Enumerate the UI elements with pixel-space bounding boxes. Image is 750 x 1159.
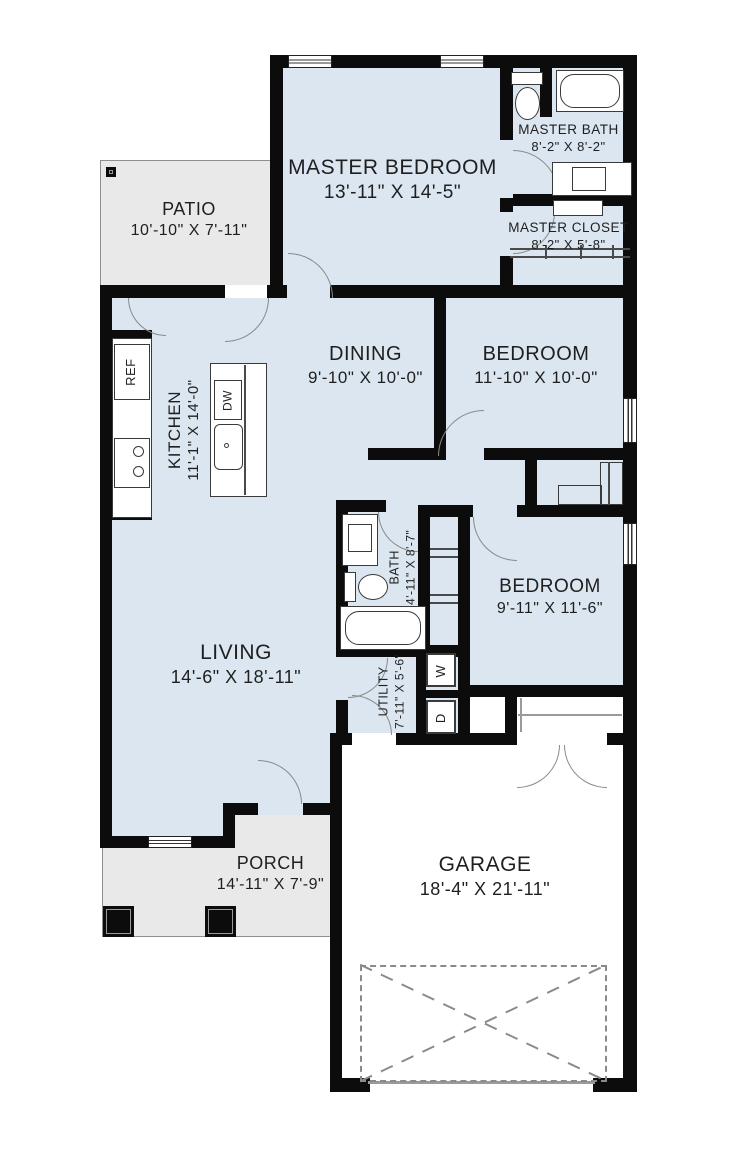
wall-hall-b bbox=[458, 505, 470, 655]
range-outline bbox=[114, 438, 150, 488]
master-toilet-tank bbox=[511, 72, 543, 85]
stoop-line-v bbox=[520, 698, 522, 732]
porch-post-left bbox=[103, 906, 134, 937]
dishwasher-label: DW bbox=[221, 385, 236, 417]
linen-shelf-1 bbox=[430, 548, 458, 550]
bedroom-right-name: BEDROOM bbox=[470, 575, 630, 599]
wall-bedroom2-bottom bbox=[458, 685, 637, 697]
bedroom-right-dims: 9'-11" X 11'-6" bbox=[470, 599, 630, 619]
master-closet-label: MASTER CLOSET 8'-2" X 5'-8" bbox=[506, 220, 631, 253]
master-bedroom-label: MASTER BEDROOM 13'-11" X 14'-5" bbox=[280, 155, 505, 205]
bath-toilet-bowl bbox=[358, 574, 388, 600]
kitchen-name: KITCHEN bbox=[164, 355, 185, 505]
dryer-label: D bbox=[433, 709, 449, 727]
kitchen-faucet bbox=[224, 443, 229, 448]
washer-text: W bbox=[433, 665, 448, 678]
wall-bedroom1-bottom bbox=[484, 448, 623, 460]
porch-post-right bbox=[205, 906, 236, 937]
bath-vanity-sink bbox=[348, 524, 372, 552]
garage-label: GARAGE 18'-4" X 21'-11" bbox=[390, 852, 580, 901]
master-closet-name: MASTER CLOSET bbox=[506, 220, 631, 237]
living-window bbox=[148, 836, 192, 848]
living-dims: 14'-6" X 18'-11" bbox=[140, 666, 332, 689]
closet-shelf-box bbox=[558, 485, 602, 505]
utility-label: UTILITY 7'-11" X 5'-6" bbox=[377, 637, 408, 745]
bath-name: BATH bbox=[388, 511, 404, 623]
dryer-text: D bbox=[433, 713, 448, 723]
patio-dims: 10'-10" X 7'-11" bbox=[108, 221, 270, 241]
master-bath-dims: 8'-2" X 8'-2" bbox=[506, 139, 631, 155]
bedroom-mid-window bbox=[623, 398, 637, 443]
floor-plan: MASTER BEDROOM 13'-11" X 14'-5" MASTER B… bbox=[0, 0, 750, 1159]
master-bath-name: MASTER BATH bbox=[506, 122, 631, 139]
bedroom-right-label: BEDROOM 9'-11" X 11'-6" bbox=[470, 575, 630, 619]
wall-dining-bottom bbox=[368, 448, 446, 460]
wall-garage-left bbox=[330, 733, 342, 1092]
wall-garage-right bbox=[623, 733, 637, 1092]
patio-name: PATIO bbox=[108, 198, 270, 221]
wall-mid-horizontal bbox=[100, 285, 637, 298]
master-bedroom-window-2 bbox=[440, 55, 484, 68]
dishwasher-text: DW bbox=[221, 390, 235, 411]
master-bedroom-name: MASTER BEDROOM bbox=[280, 155, 505, 181]
right-closet-box bbox=[600, 462, 623, 505]
bath-dims: 4'-11" X 8'-7" bbox=[403, 511, 418, 623]
kitchen-label: KITCHEN 11'-1" X 14'-0" bbox=[164, 355, 204, 505]
patio-post bbox=[106, 167, 116, 177]
master-tub-basin bbox=[560, 74, 620, 108]
stoop-line-h bbox=[518, 714, 622, 716]
right-closet-line bbox=[608, 462, 610, 505]
wall-toilet-nook bbox=[540, 55, 552, 117]
living-label: LIVING 14'-6" X 18'-11" bbox=[140, 640, 332, 689]
garage-dims: 18'-4" X 21'-11" bbox=[390, 878, 580, 901]
utility-name: UTILITY bbox=[377, 637, 393, 745]
porch-dims: 14'-11" X 7'-9" bbox=[178, 875, 363, 895]
bedroom-mid-name: BEDROOM bbox=[452, 342, 620, 367]
wall-bath-top bbox=[336, 500, 386, 512]
bedroom-mid-label: BEDROOM 11'-10" X 10'-0" bbox=[452, 342, 620, 388]
linen-shelf-3 bbox=[430, 594, 458, 596]
refrigerator-label: REF bbox=[123, 347, 139, 397]
master-vanity-sink bbox=[572, 167, 606, 191]
porch-name: PORCH bbox=[178, 852, 363, 875]
washer-label: W bbox=[433, 662, 449, 680]
master-bedroom-window-1 bbox=[288, 55, 332, 68]
garage-double-door-opening bbox=[517, 733, 607, 745]
kitchen-dims: 11'-1" X 14'-0" bbox=[185, 355, 204, 505]
linen-shelf-2 bbox=[430, 556, 458, 558]
bath-label: BATH 4'-11" X 8'-7" bbox=[388, 511, 419, 623]
dining-dims: 9'-10" X 10'-0" bbox=[298, 367, 433, 388]
bath-toilet-tank bbox=[344, 572, 356, 602]
master-bedroom-dims: 13'-11" X 14'-5" bbox=[280, 181, 505, 205]
dining-label: DINING 9'-10" X 10'-0" bbox=[298, 342, 433, 388]
porch-label: PORCH 14'-11" X 7'-9" bbox=[178, 852, 363, 895]
range-burner-2 bbox=[133, 466, 144, 477]
garage-name: GARAGE bbox=[390, 852, 580, 878]
linen-shelf-4 bbox=[430, 602, 458, 604]
master-closet-dims: 8'-2" X 5'-8" bbox=[506, 237, 631, 253]
living-name: LIVING bbox=[140, 640, 332, 666]
island-counter-line bbox=[244, 365, 246, 495]
utility-door-opening bbox=[336, 660, 348, 700]
utility-dims: 7'-11" X 5'-6" bbox=[392, 637, 407, 745]
wall-left bbox=[100, 285, 112, 848]
front-door-opening bbox=[258, 803, 303, 815]
master-closet-rod bbox=[553, 200, 603, 216]
master-toilet-bowl bbox=[515, 87, 540, 120]
bedroom-mid-dims: 11'-10" X 10'-0" bbox=[452, 367, 620, 388]
refrigerator-text: REF bbox=[123, 358, 138, 386]
master-bath-label: MASTER BATH 8'-2" X 8'-2" bbox=[506, 122, 631, 155]
bedroom-right-window bbox=[623, 523, 637, 565]
patio-door-opening bbox=[225, 285, 267, 298]
bedroom2-door-opening bbox=[473, 505, 517, 517]
dining-name: DINING bbox=[298, 342, 433, 367]
wall-stoop bbox=[505, 697, 517, 733]
range-burner-1 bbox=[133, 446, 144, 457]
patio-label: PATIO 10'-10" X 7'-11" bbox=[108, 198, 270, 241]
